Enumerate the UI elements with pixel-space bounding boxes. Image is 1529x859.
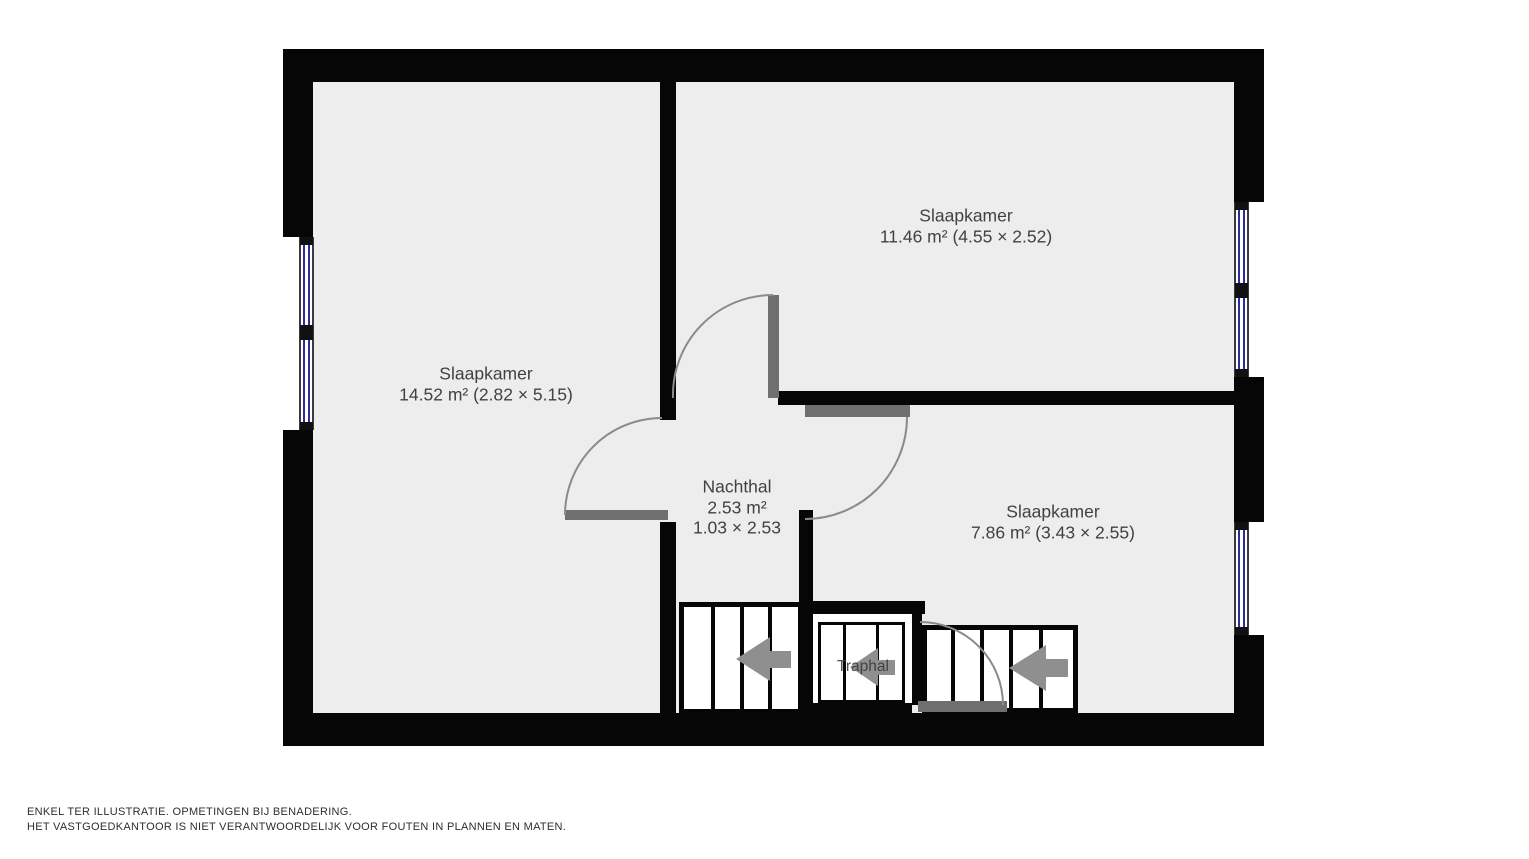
stair-tread <box>711 607 715 709</box>
stairwell-bottom-edge <box>813 703 912 713</box>
disclaimer-text: ENKEL TER ILLUSTRATIE. OPMETINGEN BIJ BE… <box>27 805 566 834</box>
wall-right-middle <box>1234 377 1264 522</box>
window-right-upper-mullion <box>1235 283 1248 298</box>
disclaimer-line-1: ENKEL TER ILLUSTRATIE. OPMETINGEN BIJ BE… <box>27 805 566 820</box>
wall-stairwell-right <box>912 614 922 705</box>
wall-left-bedroom-lower <box>660 522 676 713</box>
room-label-bedroom-bottomright-name: Slaapkamer <box>1006 502 1099 523</box>
room-label-bedroom-topright-details: 11.46 m² (4.55 × 2.52) <box>880 227 1052 248</box>
room-label-bedroom-bottomright-details: 7.86 m² (3.43 × 2.55) <box>971 523 1135 544</box>
window-left-mullion <box>300 422 313 430</box>
room-label-nighthall-name: Nachthal <box>702 477 771 498</box>
stair-tread <box>980 630 984 708</box>
room-label-nighthall-dimensions: 1.03 × 2.53 <box>693 518 781 539</box>
door-leaf-left-bedroom <box>565 510 668 520</box>
wall-stairwell-top <box>800 601 925 614</box>
stair-tread <box>951 630 955 708</box>
floorplan-canvas: Slaapkamer 14.52 m² (2.82 × 5.15) Slaapk… <box>0 0 1529 859</box>
window-right-lower-glass <box>1243 526 1245 631</box>
wall-right-lower <box>1234 635 1264 746</box>
wall-top <box>283 49 1264 82</box>
room-label-stairhall-name: Traphal <box>837 658 889 676</box>
stair-tread <box>740 607 744 709</box>
wall-left-upper <box>283 49 313 237</box>
window-right-upper-mullion <box>1235 202 1248 210</box>
wall-left-bedroom-upper <box>660 82 676 420</box>
wall-left-lower <box>283 430 313 713</box>
stair-tread <box>1009 630 1013 708</box>
window-right-upper-mullion <box>1235 369 1248 377</box>
window-right-lower-glass <box>1238 526 1240 631</box>
stair-tread <box>768 607 772 709</box>
room-label-nighthall-area: 2.53 m² <box>707 498 766 519</box>
room-label-bedroom-left-name: Slaapkamer <box>439 364 532 385</box>
staircase-right <box>922 625 1078 713</box>
door-leaf-bottomright-bedroom <box>805 405 910 417</box>
window-right-lower <box>1234 522 1249 635</box>
room-label-bedroom-topright-name: Slaapkamer <box>919 206 1012 227</box>
window-left-mullion <box>300 237 313 245</box>
window-right-lower-mullion <box>1235 627 1248 635</box>
window-right-lower-mullion <box>1235 522 1248 530</box>
wall-right-upper <box>1234 49 1264 202</box>
door-leaf-topright-bedroom <box>768 295 779 398</box>
stair-tread <box>1039 630 1043 708</box>
window-left-mullion <box>300 325 313 340</box>
wall-topright-bedroom <box>778 391 1234 405</box>
room-label-bedroom-left-details: 14.52 m² (2.82 × 5.15) <box>399 385 573 406</box>
disclaimer-line-2: HET VASTGOEDKANTOOR IS NIET VERANTWOORDE… <box>27 820 566 835</box>
door-leaf-stairs <box>918 701 1007 712</box>
wall-bottom <box>283 713 1264 746</box>
